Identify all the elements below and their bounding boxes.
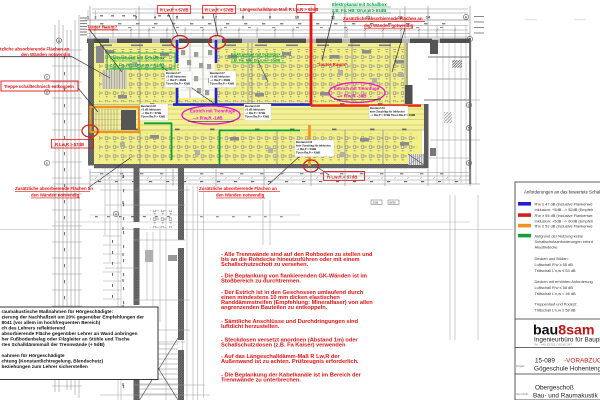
svg-text:zierung der Nachhallzeit um 20: zierung der Nachhallzeit um 20% gegenübe… bbox=[2, 315, 145, 321]
svg-text:den Wänden notwendig: den Wänden notwendig bbox=[31, 193, 80, 198]
svg-text:Trittschall L'n,w ≤ 58 dB: Trittschall L'n,w ≤ 58 dB bbox=[535, 308, 576, 313]
svg-text:kein Zuschlag für Inklusion: kein Zuschlag für Inklusion bbox=[370, 110, 405, 114]
svg-text:Luftschall R'w ≤ 58 dB: Luftschall R'w ≤ 58 dB bbox=[535, 285, 574, 290]
svg-text:Tel.: +49 (0)751 / 95 88 397: Tel.: +49 (0)751 / 95 88 397 bbox=[534, 342, 572, 346]
svg-text:R'w ≥ 47 dB (inclusive Flanken: R'w ≥ 47 dB (inclusive Flankenwe bbox=[535, 202, 593, 207]
svg-text:chtung (Konstantlichtregelung,: chtung (Konstantlichtregelung, Blendschu… bbox=[2, 359, 104, 365]
svg-text:Gögeschule Hohentengen: Gögeschule Hohentengen bbox=[534, 366, 600, 373]
svg-text:--> Rw,P > 68dB: --> Rw,P > 68dB bbox=[210, 78, 230, 82]
svg-text:Trennwände zu unterbrechen.: Trennwände zu unterbrechen. bbox=[221, 378, 301, 384]
svg-text:Bestand A8: Bestand A8 bbox=[141, 104, 156, 108]
svg-text:Treppenlauf und Podest:: Treppenlauf und Podest: bbox=[535, 302, 577, 307]
svg-text:Bestand A7: Bestand A7 bbox=[166, 71, 181, 75]
svg-text:R'w ≥ 55 dB (inclusive Flanken: R'w ≥ 55 dB (inclusive Flankenwe bbox=[535, 213, 593, 218]
svg-text:15-089: 15-089 bbox=[535, 358, 555, 365]
svg-text:-VORABZUG-: -VORABZUG- bbox=[564, 358, 600, 365]
svg-text:Türen Rw,P > 43dB: Türen Rw,P > 43dB bbox=[296, 151, 320, 155]
svg-text:Türen Rw,P > 43dB: Türen Rw,P > 43dB bbox=[166, 82, 190, 86]
svg-text:Bestand A7: Bestand A7 bbox=[210, 71, 225, 75]
svg-text:Türen Rw,P > 43dB: Türen Rw,P > 43dB bbox=[245, 115, 269, 119]
svg-text:Trittschall L'n,w < 46 dB: Trittschall L'n,w < 46 dB bbox=[535, 291, 577, 296]
svg-text:Estrich mit Trennfuge: Estrich mit Trennfuge bbox=[334, 86, 380, 91]
svg-text:Akustikdecke: Akustikdecke bbox=[535, 244, 558, 249]
svg-text:R Lw,R > 57dB: R Lw,R > 57dB bbox=[55, 142, 84, 147]
svg-text:Stoßbereich zu durchtrennen.: Stoßbereich zu durchtrennen. bbox=[221, 279, 301, 285]
svg-text:--> R'w,R -3dB: --> R'w,R -3dB bbox=[337, 94, 367, 99]
svg-text:R Lw,R > 57dB: R Lw,R > 57dB bbox=[205, 8, 233, 13]
svg-text:Elektrokanal mit Schallbox: Elektrokanal mit Schallbox bbox=[332, 2, 387, 7]
svg-text:14: 14 bbox=[426, 15, 431, 20]
svg-text:Plan-Inhalt: Plan-Inhalt bbox=[515, 392, 528, 396]
svg-text:Obergeschoß: Obergeschoß bbox=[535, 385, 574, 392]
svg-text:ch des Lehrers reflektierend: ch des Lehrers reflektierend bbox=[2, 326, 66, 332]
svg-text:z.B. Fa. HB: Dn,e,w > 61dB: z.B. Fa. HB: Dn,e,w > 61dB bbox=[231, 58, 280, 63]
svg-text:kein Zuschlag für Inklusion: kein Zuschlag für Inklusion bbox=[296, 144, 331, 148]
svg-text:Bau- und Raumakustik: Bau- und Raumakustik bbox=[533, 393, 598, 400]
svg-text:Bestand A8: Bestand A8 bbox=[245, 104, 260, 108]
svg-text:2/96: 2/96 bbox=[373, 201, 379, 205]
svg-text:Inklusion: +5dB --> 52dB (Empf: Inklusion: +5dB --> 52dB (Empfeh bbox=[535, 207, 594, 212]
svg-text:Elektrokanal mit Schallbox: Elektrokanal mit Schallbox bbox=[110, 56, 165, 61]
svg-text:+5 dB Inklusion: +5 dB Inklusion bbox=[210, 75, 230, 79]
svg-text:"lauter Raum": "lauter Raum" bbox=[317, 62, 347, 67]
svg-text:--> R'w,R -1dB: --> R'w,R -1dB bbox=[193, 116, 223, 121]
svg-text:--> Rw,P > 57dB: --> Rw,P > 57dB bbox=[141, 111, 161, 115]
svg-text:Schallschutzanforderungen erfo: Schallschutzanforderungen erford bbox=[535, 239, 593, 244]
svg-text:Zusätzliche absorbierende Fläc: Zusätzliche absorbierende Flächen an bbox=[15, 186, 93, 191]
svg-text:Estrich mit Trennfuge: Estrich mit Trennfuge bbox=[190, 109, 236, 114]
svg-text:her Fußbodenbelag oder Filzgle: her Fußbodenbelag oder Filzgleiter an St… bbox=[2, 337, 131, 343]
svg-text:Längeschalldämm-Maß R Lw,R > 6: Längeschalldämm-Maß R Lw,R > 63dB bbox=[240, 7, 319, 12]
svg-text:Schallschutzdosen (z.B. Fa Kai: Schallschutzdosen (z.B. Fa Kaiser) verwe… bbox=[221, 343, 346, 349]
svg-text:Anforderungen an das bewertete: Anforderungen an das bewertete Schallsch bbox=[524, 190, 600, 195]
svg-text:--> Rw,P > 68dB: --> Rw,P > 68dB bbox=[166, 78, 186, 82]
svg-text:R Lw,R > 57dB: R Lw,R > 57dB bbox=[160, 8, 188, 13]
svg-text:z.B. Fa. HB: Dn,e,w > 61dB: z.B. Fa. HB: Dn,e,w > 61dB bbox=[110, 63, 164, 68]
svg-text:z.B. Fa. HB: Dn,e,w > 61dB: z.B. Fa. HB: Dn,e,w > 61dB bbox=[332, 8, 386, 13]
svg-text:den Wänden notwendig: den Wänden notwendig bbox=[364, 23, 414, 28]
svg-text:lauter Raum?: lauter Raum? bbox=[88, 25, 118, 30]
svg-text:Schallschutzschott zu versehen: Schallschutzschott zu versehen. bbox=[221, 262, 309, 268]
svg-text:Außenwand ist zu achten. Prüfz: Außenwand ist zu achten. Prüfzeugnis erf… bbox=[221, 359, 359, 365]
svg-text:den Wänden notwendig: den Wänden notwendig bbox=[21, 52, 71, 57]
svg-text:8041 (vor allem im hochfrequ: 8041 (vor allem im hochfrequenten Bereic… bbox=[2, 320, 101, 326]
svg-text:--> Rw,P > 53dB: --> Rw,P > 53dB bbox=[296, 147, 316, 151]
svg-text:Decken und Böden:: Decken und Böden: bbox=[535, 256, 569, 261]
svg-text:--> Rw,P > 57dB Türen Rw,P >: --> Rw,P > 57dB Türen Rw,P > 43dB bbox=[370, 113, 415, 117]
svg-text:Trittschall L'n,w ≤ 53 dB: Trittschall L'n,w ≤ 53 dB bbox=[535, 268, 576, 273]
svg-text:+5 dB Inklusion: +5 dB Inklusion bbox=[166, 75, 186, 79]
svg-text:Zusätzliche absorbierende Fläc: Zusätzliche absorbierende Flächen an bbox=[343, 16, 423, 21]
svg-text:Türen Rw,P > 43dB: Türen Rw,P > 43dB bbox=[141, 115, 165, 119]
svg-text:Bestand A12: Bestand A12 bbox=[296, 140, 313, 144]
svg-text:rtes Schalldämmmaß der Trennwä: rtes Schalldämmmaß der Trennwände (+ 5dB… bbox=[2, 342, 105, 348]
svg-text:Aufgrund der Nutzung keine: Aufgrund der Nutzung keine bbox=[535, 233, 583, 238]
svg-text:den Wänden notwendig: den Wänden notwendig bbox=[216, 193, 265, 198]
svg-text:Elektrokanal mit Schallbox: Elektrokanal mit Schallbox bbox=[231, 52, 281, 57]
svg-text:luftdicht herzustellen.: luftdicht herzustellen. bbox=[221, 324, 280, 330]
svg-text:absorbierende Fläche gegenüber: absorbierende Fläche gegenüber Lehrer an… bbox=[2, 331, 138, 337]
svg-text:Luftschall R'w ≥ 55 dB: Luftschall R'w ≥ 55 dB bbox=[535, 262, 574, 267]
svg-text:raumakustische Maßnahmen für H: raumakustische Maßnahmen für Hörgeschädi… bbox=[2, 309, 114, 315]
svg-text:R'w ≥ 52 dB (inclusive Flanken: R'w ≥ 52 dB (inclusive Flankenwe bbox=[535, 223, 593, 228]
svg-text:Projekt: Projekt bbox=[516, 364, 525, 368]
svg-text:Decken mit erhöhten Anforderun: Decken mit erhöhten Anforderung bbox=[535, 279, 593, 284]
svg-text:nahmen für Hörgeschädigte: nahmen für Hörgeschädigte bbox=[2, 353, 65, 359]
svg-text:10: 10 bbox=[295, 15, 300, 20]
svg-text:+5 dB Inklusion: +5 dB Inklusion bbox=[245, 108, 265, 112]
svg-text:angrenzenden Bauteilen zu entk: angrenzenden Bauteilen zu entkoppeln. bbox=[221, 305, 328, 311]
svg-text:tzliche absorbierende Flächen: tzliche absorbierende Flächen an bbox=[0, 47, 70, 52]
svg-text:--> Rw,P > 57dB: --> Rw,P > 57dB bbox=[245, 111, 265, 115]
svg-text:+5 dB Inklusion: +5 dB Inklusion bbox=[141, 108, 161, 112]
svg-text:Treppe schalltechnisch entkopp: Treppe schalltechnisch entkoppeln bbox=[4, 84, 74, 89]
svg-text:beziehungen zum Lehrer sichers: beziehungen zum Lehrer sicherstellen bbox=[2, 364, 88, 370]
svg-text:Türen Rw,P > 43dB: Türen Rw,P > 43dB bbox=[210, 82, 234, 86]
svg-text:B/96: B/96 bbox=[390, 201, 397, 205]
svg-text:Zusätzliche absorbierende Fläc: Zusätzliche absorbierende Flächen an bbox=[199, 186, 277, 191]
svg-text:Bestand A9: Bestand A9 bbox=[370, 106, 385, 110]
